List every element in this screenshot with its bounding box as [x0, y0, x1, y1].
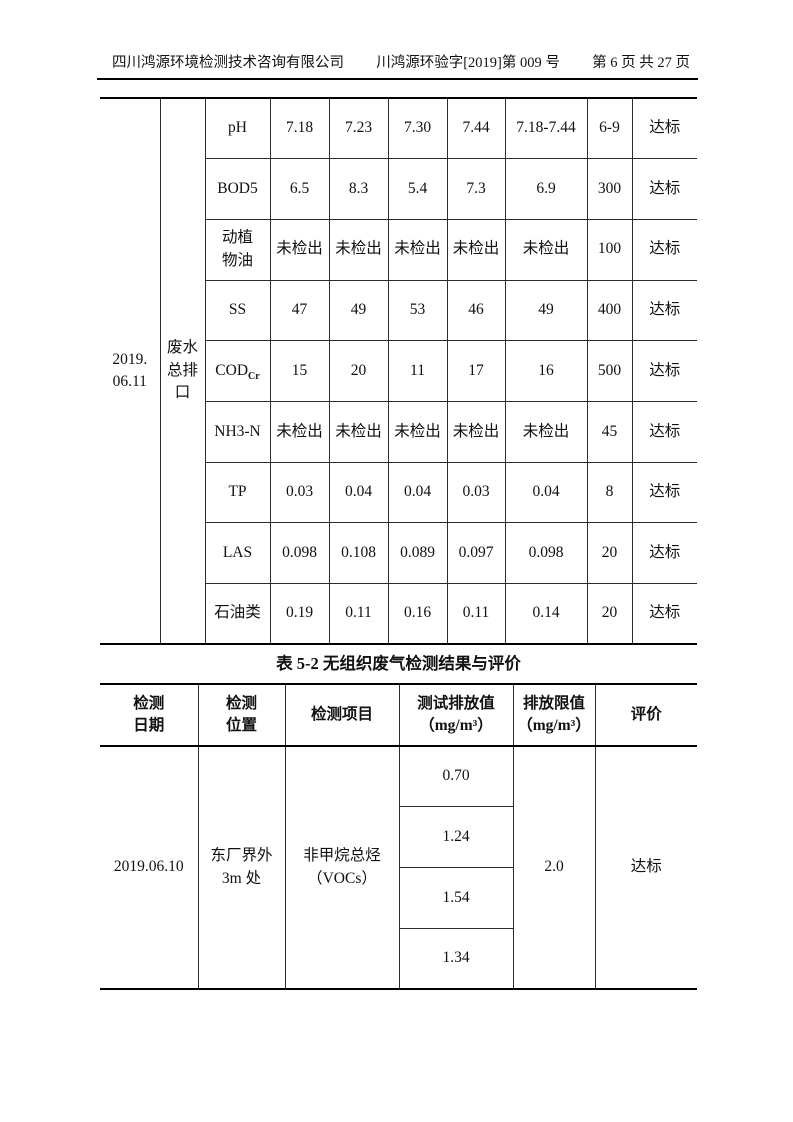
table-header-row: 检测 日期 检测 位置 检测项目 测试排放值 （mg/m³） 排放限值 （mg/… — [100, 684, 697, 746]
limit-cell: 300 — [587, 159, 632, 220]
average-cell: 0.098 — [505, 523, 587, 584]
value-cell: 0.11 — [329, 584, 388, 645]
eval-cell: 达标 — [632, 341, 697, 402]
limit-cell: 400 — [587, 280, 632, 341]
sample-date-cell: 2019.06.10 — [100, 746, 198, 989]
value-cell: 6.5 — [270, 159, 329, 220]
eval-cell: 达标 — [632, 159, 697, 220]
sample-location-cell: 东厂界外 3m 处 — [198, 746, 285, 989]
wastewater-results-table: 2019. 06.11 废水 总排 口 pH 7.18 7.23 7.30 7.… — [100, 97, 697, 645]
value-cell: 7.30 — [388, 98, 447, 159]
table-row: 2019. 06.11 废水 总排 口 pH 7.18 7.23 7.30 7.… — [100, 98, 697, 159]
company-name: 四川鸿源环境检测技术咨询有限公司 — [112, 55, 344, 72]
value-cell: 7.3 — [447, 159, 505, 220]
param-cell: TP — [205, 462, 270, 523]
header-limit: 排放限值 （mg/m³） — [513, 684, 595, 746]
eval-cell: 达标 — [632, 462, 697, 523]
eval-cell: 达标 — [632, 584, 697, 645]
value-cell: 7.44 — [447, 98, 505, 159]
sample-date-cell: 2019. 06.11 — [100, 98, 160, 644]
value-cell: 未检出 — [388, 219, 447, 280]
value-cell: 0.097 — [447, 523, 505, 584]
value-cell: 1.54 — [399, 868, 513, 929]
item-cell: 非甲烷总烃 （VOCs） — [285, 746, 399, 989]
eval-cell: 达标 — [632, 219, 697, 280]
table-row: 2019.06.10 东厂界外 3m 处 非甲烷总烃 （VOCs） 0.70 2… — [100, 746, 697, 807]
value-cell: 8.3 — [329, 159, 388, 220]
value-cell: 0.03 — [270, 462, 329, 523]
param-cell: 动植 物油 — [205, 219, 270, 280]
limit-cell: 8 — [587, 462, 632, 523]
param-main: COD — [215, 362, 248, 379]
limit-cell: 6-9 — [587, 98, 632, 159]
value-cell: 0.108 — [329, 523, 388, 584]
header-date: 检测 日期 — [100, 684, 198, 746]
value-cell: 20 — [329, 341, 388, 402]
page-header: 四川鸿源环境检测技术咨询有限公司 川鸿源环验字[2019]第 009 号 第 6… — [97, 55, 698, 80]
doc-number: 川鸿源环验字[2019]第 009 号 — [376, 55, 560, 72]
value-cell: 0.03 — [447, 462, 505, 523]
eval-cell: 达标 — [632, 280, 697, 341]
report-page: 四川鸿源环境检测技术咨询有限公司 川鸿源环验字[2019]第 009 号 第 6… — [0, 0, 793, 1122]
average-cell: 未检出 — [505, 401, 587, 462]
param-subscript: Cr — [248, 371, 260, 382]
value-cell: 1.34 — [399, 928, 513, 989]
param-cell: 石油类 — [205, 584, 270, 645]
limit-cell: 20 — [587, 584, 632, 645]
eval-cell: 达标 — [595, 746, 697, 989]
average-cell: 6.9 — [505, 159, 587, 220]
value-cell: 46 — [447, 280, 505, 341]
average-cell: 16 — [505, 341, 587, 402]
value-cell: 47 — [270, 280, 329, 341]
limit-cell: 2.0 — [513, 746, 595, 989]
eval-cell: 达标 — [632, 401, 697, 462]
value-cell: 17 — [447, 341, 505, 402]
average-cell: 0.04 — [505, 462, 587, 523]
header-measured-value: 测试排放值 （mg/m³） — [399, 684, 513, 746]
value-cell: 未检出 — [388, 401, 447, 462]
value-cell: 7.23 — [329, 98, 388, 159]
value-cell: 1.24 — [399, 807, 513, 868]
value-cell: 0.04 — [388, 462, 447, 523]
fugitive-gas-table: 检测 日期 检测 位置 检测项目 测试排放值 （mg/m³） 排放限值 （mg/… — [100, 683, 697, 990]
limit-cell: 20 — [587, 523, 632, 584]
value-cell: 0.70 — [399, 746, 513, 807]
sample-location-cell: 废水 总排 口 — [160, 98, 205, 644]
value-cell: 49 — [329, 280, 388, 341]
average-cell: 未检出 — [505, 219, 587, 280]
value-cell: 0.19 — [270, 584, 329, 645]
header-location: 检测 位置 — [198, 684, 285, 746]
header-eval: 评价 — [595, 684, 697, 746]
limit-cell: 500 — [587, 341, 632, 402]
value-cell: 53 — [388, 280, 447, 341]
average-cell: 7.18-7.44 — [505, 98, 587, 159]
value-cell: 未检出 — [329, 401, 388, 462]
eval-cell: 达标 — [632, 98, 697, 159]
eval-cell: 达标 — [632, 523, 697, 584]
average-cell: 0.14 — [505, 584, 587, 645]
value-cell: 0.098 — [270, 523, 329, 584]
value-cell: 未检出 — [329, 219, 388, 280]
value-cell: 0.089 — [388, 523, 447, 584]
page-indicator: 第 6 页 共 27 页 — [592, 55, 690, 72]
param-cell: BOD5 — [205, 159, 270, 220]
value-cell: 11 — [388, 341, 447, 402]
param-cell: CODCr — [205, 341, 270, 402]
param-cell: NH3-N — [205, 401, 270, 462]
param-cell: LAS — [205, 523, 270, 584]
value-cell: 未检出 — [447, 219, 505, 280]
value-cell: 5.4 — [388, 159, 447, 220]
value-cell: 未检出 — [270, 219, 329, 280]
value-cell: 0.11 — [447, 584, 505, 645]
value-cell: 15 — [270, 341, 329, 402]
value-cell: 0.04 — [329, 462, 388, 523]
value-cell: 未检出 — [270, 401, 329, 462]
param-cell: SS — [205, 280, 270, 341]
table-5-2-title: 表 5-2 无组织废气检测结果与评价 — [100, 653, 697, 675]
param-cell: pH — [205, 98, 270, 159]
limit-cell: 100 — [587, 219, 632, 280]
value-cell: 0.16 — [388, 584, 447, 645]
value-cell: 未检出 — [447, 401, 505, 462]
value-cell: 7.18 — [270, 98, 329, 159]
header-item: 检测项目 — [285, 684, 399, 746]
limit-cell: 45 — [587, 401, 632, 462]
average-cell: 49 — [505, 280, 587, 341]
